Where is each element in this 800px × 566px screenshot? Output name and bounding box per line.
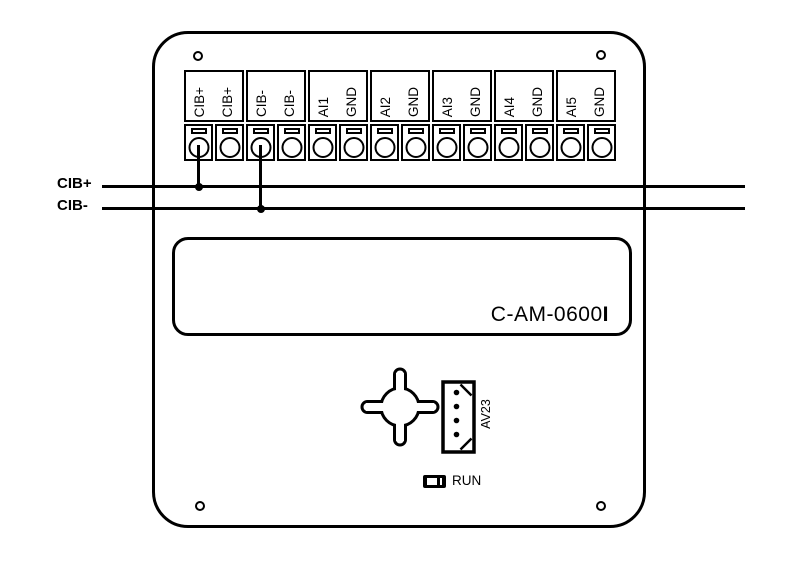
connector-pin-icon [454,404,460,410]
wire-cib-minus-drop [259,145,262,212]
terminal-label: GND [531,87,545,117]
terminal-slot-icon [594,128,610,134]
terminal-label: CIB+ [193,87,207,117]
terminal-label: CIB+ [221,87,235,117]
screw-terminal [339,124,368,161]
terminal-slot-icon [315,128,331,134]
terminal-slot-icon [346,128,362,134]
terminal-slot-icon [563,128,579,134]
terminal-label-box: AI1 GND [308,70,368,122]
terminal-screw-icon [498,137,519,158]
run-led-slit [440,478,442,485]
terminal-label: GND [469,87,483,117]
terminal-label: GND [345,87,359,117]
terminal-slot-icon [439,128,455,134]
terminal-label-box: AI3 GND [432,70,492,122]
junction-dot [257,205,265,213]
bus-wire-cib-minus [102,207,745,210]
corner-screw-hole-icon [596,50,606,60]
screw-terminal [308,124,337,161]
terminal-label: AI3 [441,97,455,117]
terminal-slot-icon [501,128,517,134]
device-model: C-AM-0600 [491,303,603,326]
terminal-label: GND [407,87,421,117]
terminal-screw-icon [281,137,302,158]
corner-screw-hole-icon [195,501,205,511]
screw-terminal [215,124,244,161]
terminal-slot-icon [222,128,238,134]
screw-terminal [370,124,399,161]
terminal-screw-icon [467,137,488,158]
run-led-window [427,478,437,485]
terminal-slot-icon [191,128,207,134]
terminal-label: AI1 [317,97,331,117]
terminal-label-box: CIB+ CIB+ [184,70,244,122]
terminal-screw-icon [219,137,240,158]
terminal-screw-icon [436,137,457,158]
device-model-text: C-AM-0600I [172,303,609,327]
terminal-slot-icon [470,128,486,134]
screw-terminal [494,124,523,161]
terminal-slot-icon [284,128,300,134]
terminal-label: CIB- [283,90,297,117]
run-led-label: RUN [452,473,481,488]
corner-screw-hole-icon [596,501,606,511]
wiring-diagram: CIB+ CIB- CIB+ CIB+ CIB- CIB- AI1 GND AI… [0,0,800,566]
terminal-screw-icon [591,137,612,158]
junction-dot [195,183,203,191]
mounting-cross-icon [358,365,442,449]
screw-terminal [556,124,585,161]
terminal-screw-icon [405,137,426,158]
terminal-slot-icon [253,128,269,134]
terminal-screw-icon [560,137,581,158]
terminal-screw-icon [312,137,333,158]
service-connector [441,380,477,455]
terminal-label: AI2 [379,97,393,117]
terminal-label-row: CIB+ CIB+ CIB- CIB- AI1 GND AI2 GND AI3 … [184,70,616,122]
terminal-label: AI5 [565,97,579,117]
screw-terminal [463,124,492,161]
connector-pin-icon [454,390,460,396]
terminal-label-box: AI4 GND [494,70,554,122]
terminal-label: GND [593,87,607,117]
screw-terminal [587,124,616,161]
terminal-label: AI4 [503,97,517,117]
bus-wire-label-cib-minus: CIB- [57,199,88,213]
bus-wire-label-cib-plus: CIB+ [57,177,92,191]
device-model-suffix: I [603,303,609,326]
terminal-label-box: AI2 GND [370,70,430,122]
terminal-screw-icon [343,137,364,158]
connector-pin-icon [454,432,460,438]
screw-terminal-row [184,124,616,161]
terminal-label-box: AI5 GND [556,70,616,122]
terminal-slot-icon [377,128,393,134]
terminal-slot-icon [532,128,548,134]
screw-terminal [401,124,430,161]
terminal-label: CIB- [255,90,269,117]
terminal-slot-icon [408,128,424,134]
terminal-screw-icon [374,137,395,158]
screw-terminal [525,124,554,161]
connector-pin-icon [454,418,460,424]
screw-terminal [432,124,461,161]
terminal-label-box: CIB- CIB- [246,70,306,122]
screw-terminal [277,124,306,161]
terminal-screw-icon [529,137,550,158]
connector-label: AV23 [479,394,493,434]
corner-screw-hole-icon [193,51,203,61]
